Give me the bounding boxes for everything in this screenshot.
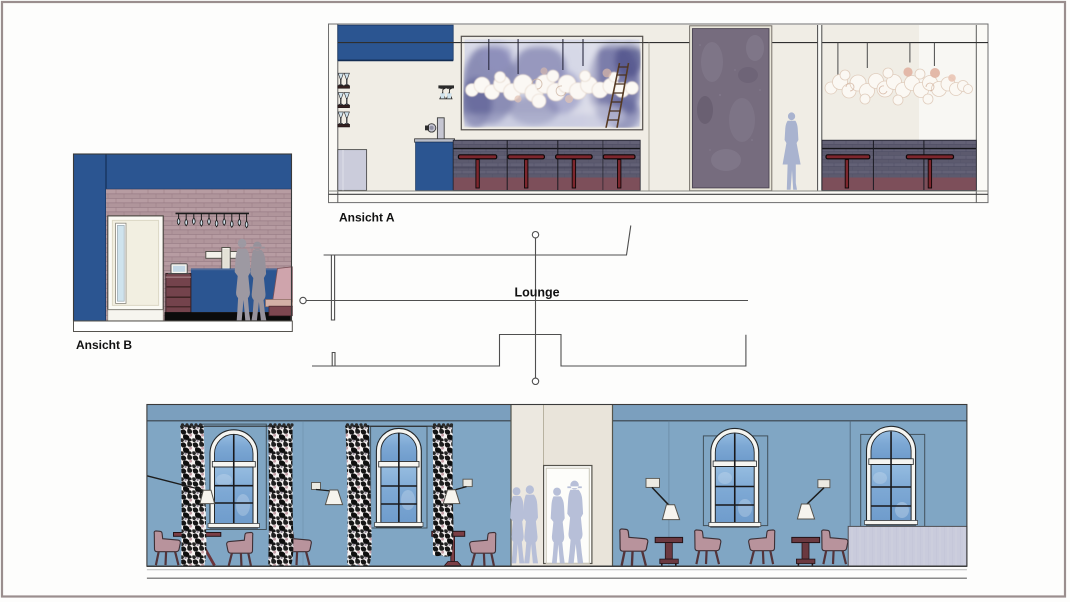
svg-text:Ansicht A: Ansicht A [339,211,395,225]
svg-text:Ansicht B: Ansicht B [76,338,132,352]
svg-text:Lounge: Lounge [515,286,560,300]
